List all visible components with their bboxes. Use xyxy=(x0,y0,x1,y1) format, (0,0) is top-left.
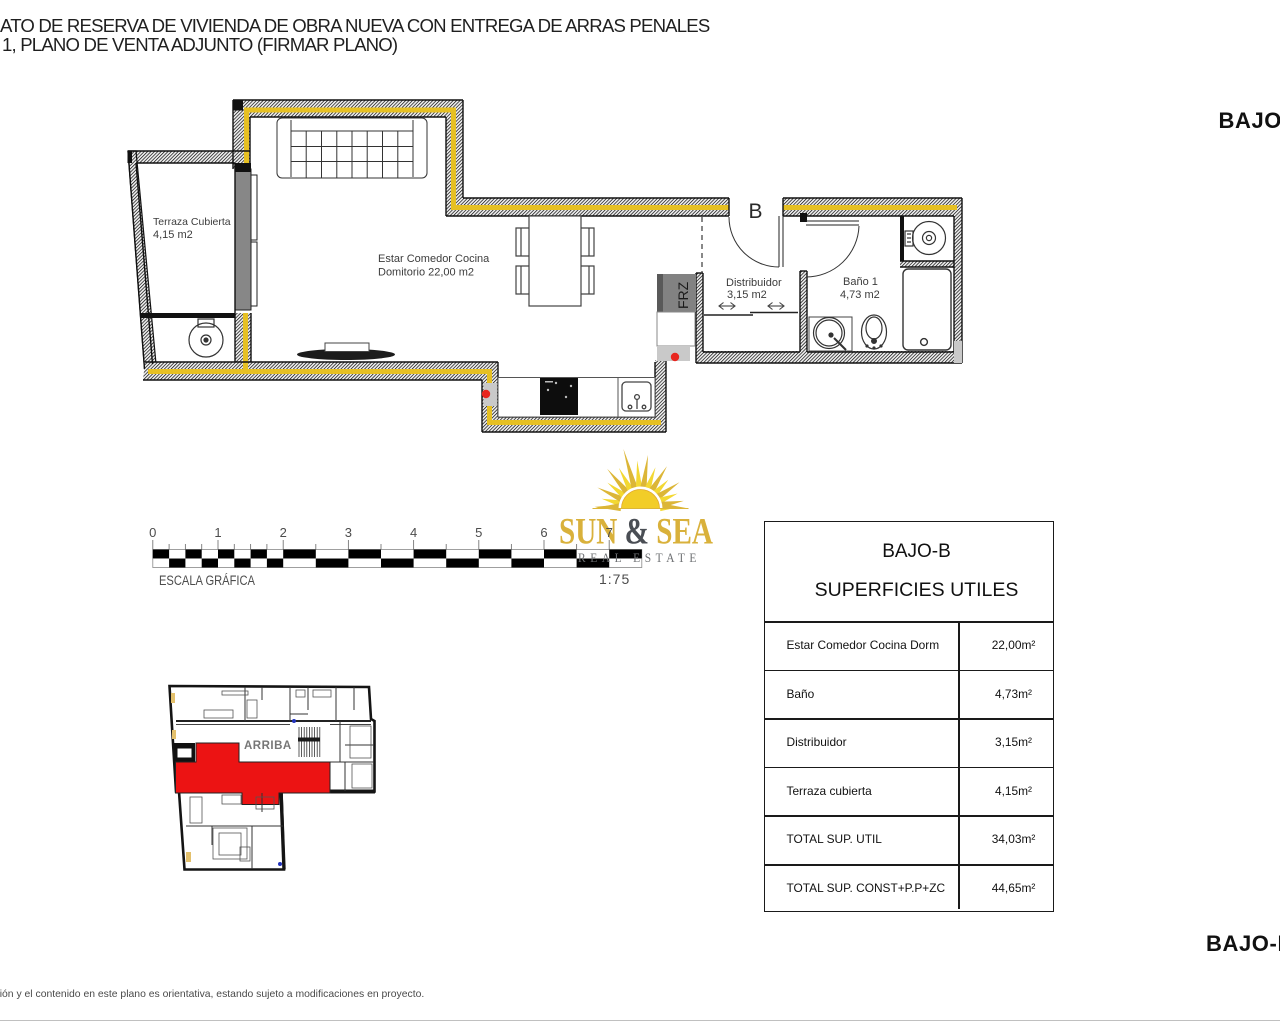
svg-text:4,73 m2: 4,73 m2 xyxy=(840,289,880,301)
svg-text:2: 2 xyxy=(280,525,287,540)
svg-text:Baño 1: Baño 1 xyxy=(843,276,878,288)
svg-text:Terraza Cubierta: Terraza Cubierta xyxy=(153,216,231,228)
svg-text:ARRIBA: ARRIBA xyxy=(244,740,292,752)
svg-text:1:75: 1:75 xyxy=(599,571,630,587)
svg-text:REAL ESTATE: REAL ESTATE xyxy=(578,551,701,565)
svg-text:Domitorio 22,00 m2: Domitorio 22,00 m2 xyxy=(378,267,474,279)
svg-text:B: B xyxy=(749,200,763,223)
svg-text:7: 7 xyxy=(606,525,613,540)
svg-text:Distribuidor: Distribuidor xyxy=(726,277,782,289)
svg-text:SUN & SEA: SUN & SEA xyxy=(559,512,713,553)
svg-text:0: 0 xyxy=(149,525,156,540)
svg-text:4: 4 xyxy=(410,525,417,540)
svg-text:1: 1 xyxy=(214,525,221,540)
svg-text:4,15 m2: 4,15 m2 xyxy=(153,229,193,241)
svg-text:3,15 m2: 3,15 m2 xyxy=(727,289,767,301)
svg-text:FRZ: FRZ xyxy=(675,281,691,309)
svg-text:ESCALA GRÁFICA: ESCALA GRÁFICA xyxy=(159,573,255,588)
svg-text:Estar Comedor Cocina: Estar Comedor Cocina xyxy=(378,253,490,265)
svg-text:5: 5 xyxy=(475,525,482,540)
svg-text:6: 6 xyxy=(540,525,547,540)
svg-text:3: 3 xyxy=(345,525,352,540)
